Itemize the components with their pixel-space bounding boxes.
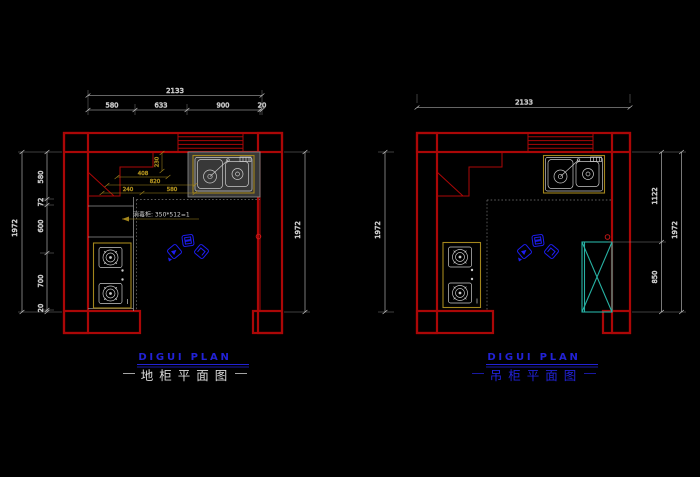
dim-label: 1972 (11, 219, 19, 237)
left-plan-title: DIGUI PLAN 地柜平面图 (123, 352, 249, 383)
dim-label: 240 (123, 187, 134, 193)
left-plan-interior-dims: 230 408 820 240 580 (100, 151, 198, 195)
dim-label: 580 (106, 102, 119, 110)
dim-label: 820 (150, 179, 161, 185)
dim-label: 850 (651, 271, 659, 284)
dim-label: 230 (155, 156, 161, 167)
left-plan: 2133 580 633 900 20 1972 580 72 600 700 … (11, 87, 310, 383)
right-plan-dim-left: 1972 (374, 150, 394, 314)
right-plan-dim-top: 2133 (415, 94, 633, 110)
window-hatch (528, 133, 593, 152)
dim-label: 580 (167, 187, 178, 193)
gas-stove (443, 243, 481, 308)
dim-label: 2133 (166, 87, 184, 95)
gas-stove (94, 243, 132, 308)
cad-drawing-canvas: 2133 580 633 900 20 1972 580 72 600 700 … (0, 0, 700, 477)
cad-drawing: 2133 580 633 900 20 1972 580 72 600 700 … (0, 0, 700, 477)
window-hatch (178, 133, 243, 152)
dim-label: 408 (138, 171, 149, 177)
dim-label: 72 (37, 198, 45, 207)
logo-watermark (517, 234, 559, 261)
tall-cabinet-cross (582, 242, 612, 312)
dim-label: 1972 (294, 221, 302, 239)
dim-label: 900 (217, 102, 230, 110)
right-plan-dim-right: 1122 850 1972 (608, 150, 686, 314)
dim-label: 600 (37, 220, 45, 233)
dim-label: 1122 (651, 187, 659, 204)
plan-title-cn: 吊柜平面图 (490, 368, 583, 383)
left-plan-dim-left: 1972 580 72 600 700 20 (11, 150, 62, 314)
outlet-marker (605, 235, 610, 240)
dim-label: 1972 (374, 221, 382, 239)
dim-label: 1972 (671, 221, 679, 239)
dim-label: 580 (37, 171, 45, 184)
logo-watermark (167, 234, 209, 261)
dim-label: 700 (37, 275, 45, 288)
dim-label: 633 (155, 102, 168, 110)
left-plan-dim-right: 1972 (284, 150, 310, 314)
double-bowl-sink (544, 156, 605, 194)
dim-label: 20 (258, 102, 267, 110)
plan-title-en: DIGUI PLAN (138, 352, 231, 363)
counter-edge-dotted (487, 200, 612, 311)
right-plan-cabinet-outline (437, 152, 612, 311)
dim-label: 20 (37, 304, 45, 313)
right-plan: 2133 1972 1122 850 1972 DIGUI PLAN 吊柜平面图 (374, 94, 686, 383)
plan-title-cn: 地柜平面图 (141, 368, 234, 383)
right-plan-walls (417, 133, 630, 333)
right-plan-title: DIGUI PLAN 吊柜平面图 (472, 352, 598, 383)
left-plan-dim-top: 2133 580 633 900 20 (86, 87, 267, 115)
annotation-text: 消毒柜: 350*512=1 (133, 211, 190, 219)
corner-cabinet (437, 152, 502, 196)
plan-title-en: DIGUI PLAN (487, 352, 580, 363)
leader-arrow (122, 217, 129, 222)
dim-label: 2133 (515, 99, 533, 107)
